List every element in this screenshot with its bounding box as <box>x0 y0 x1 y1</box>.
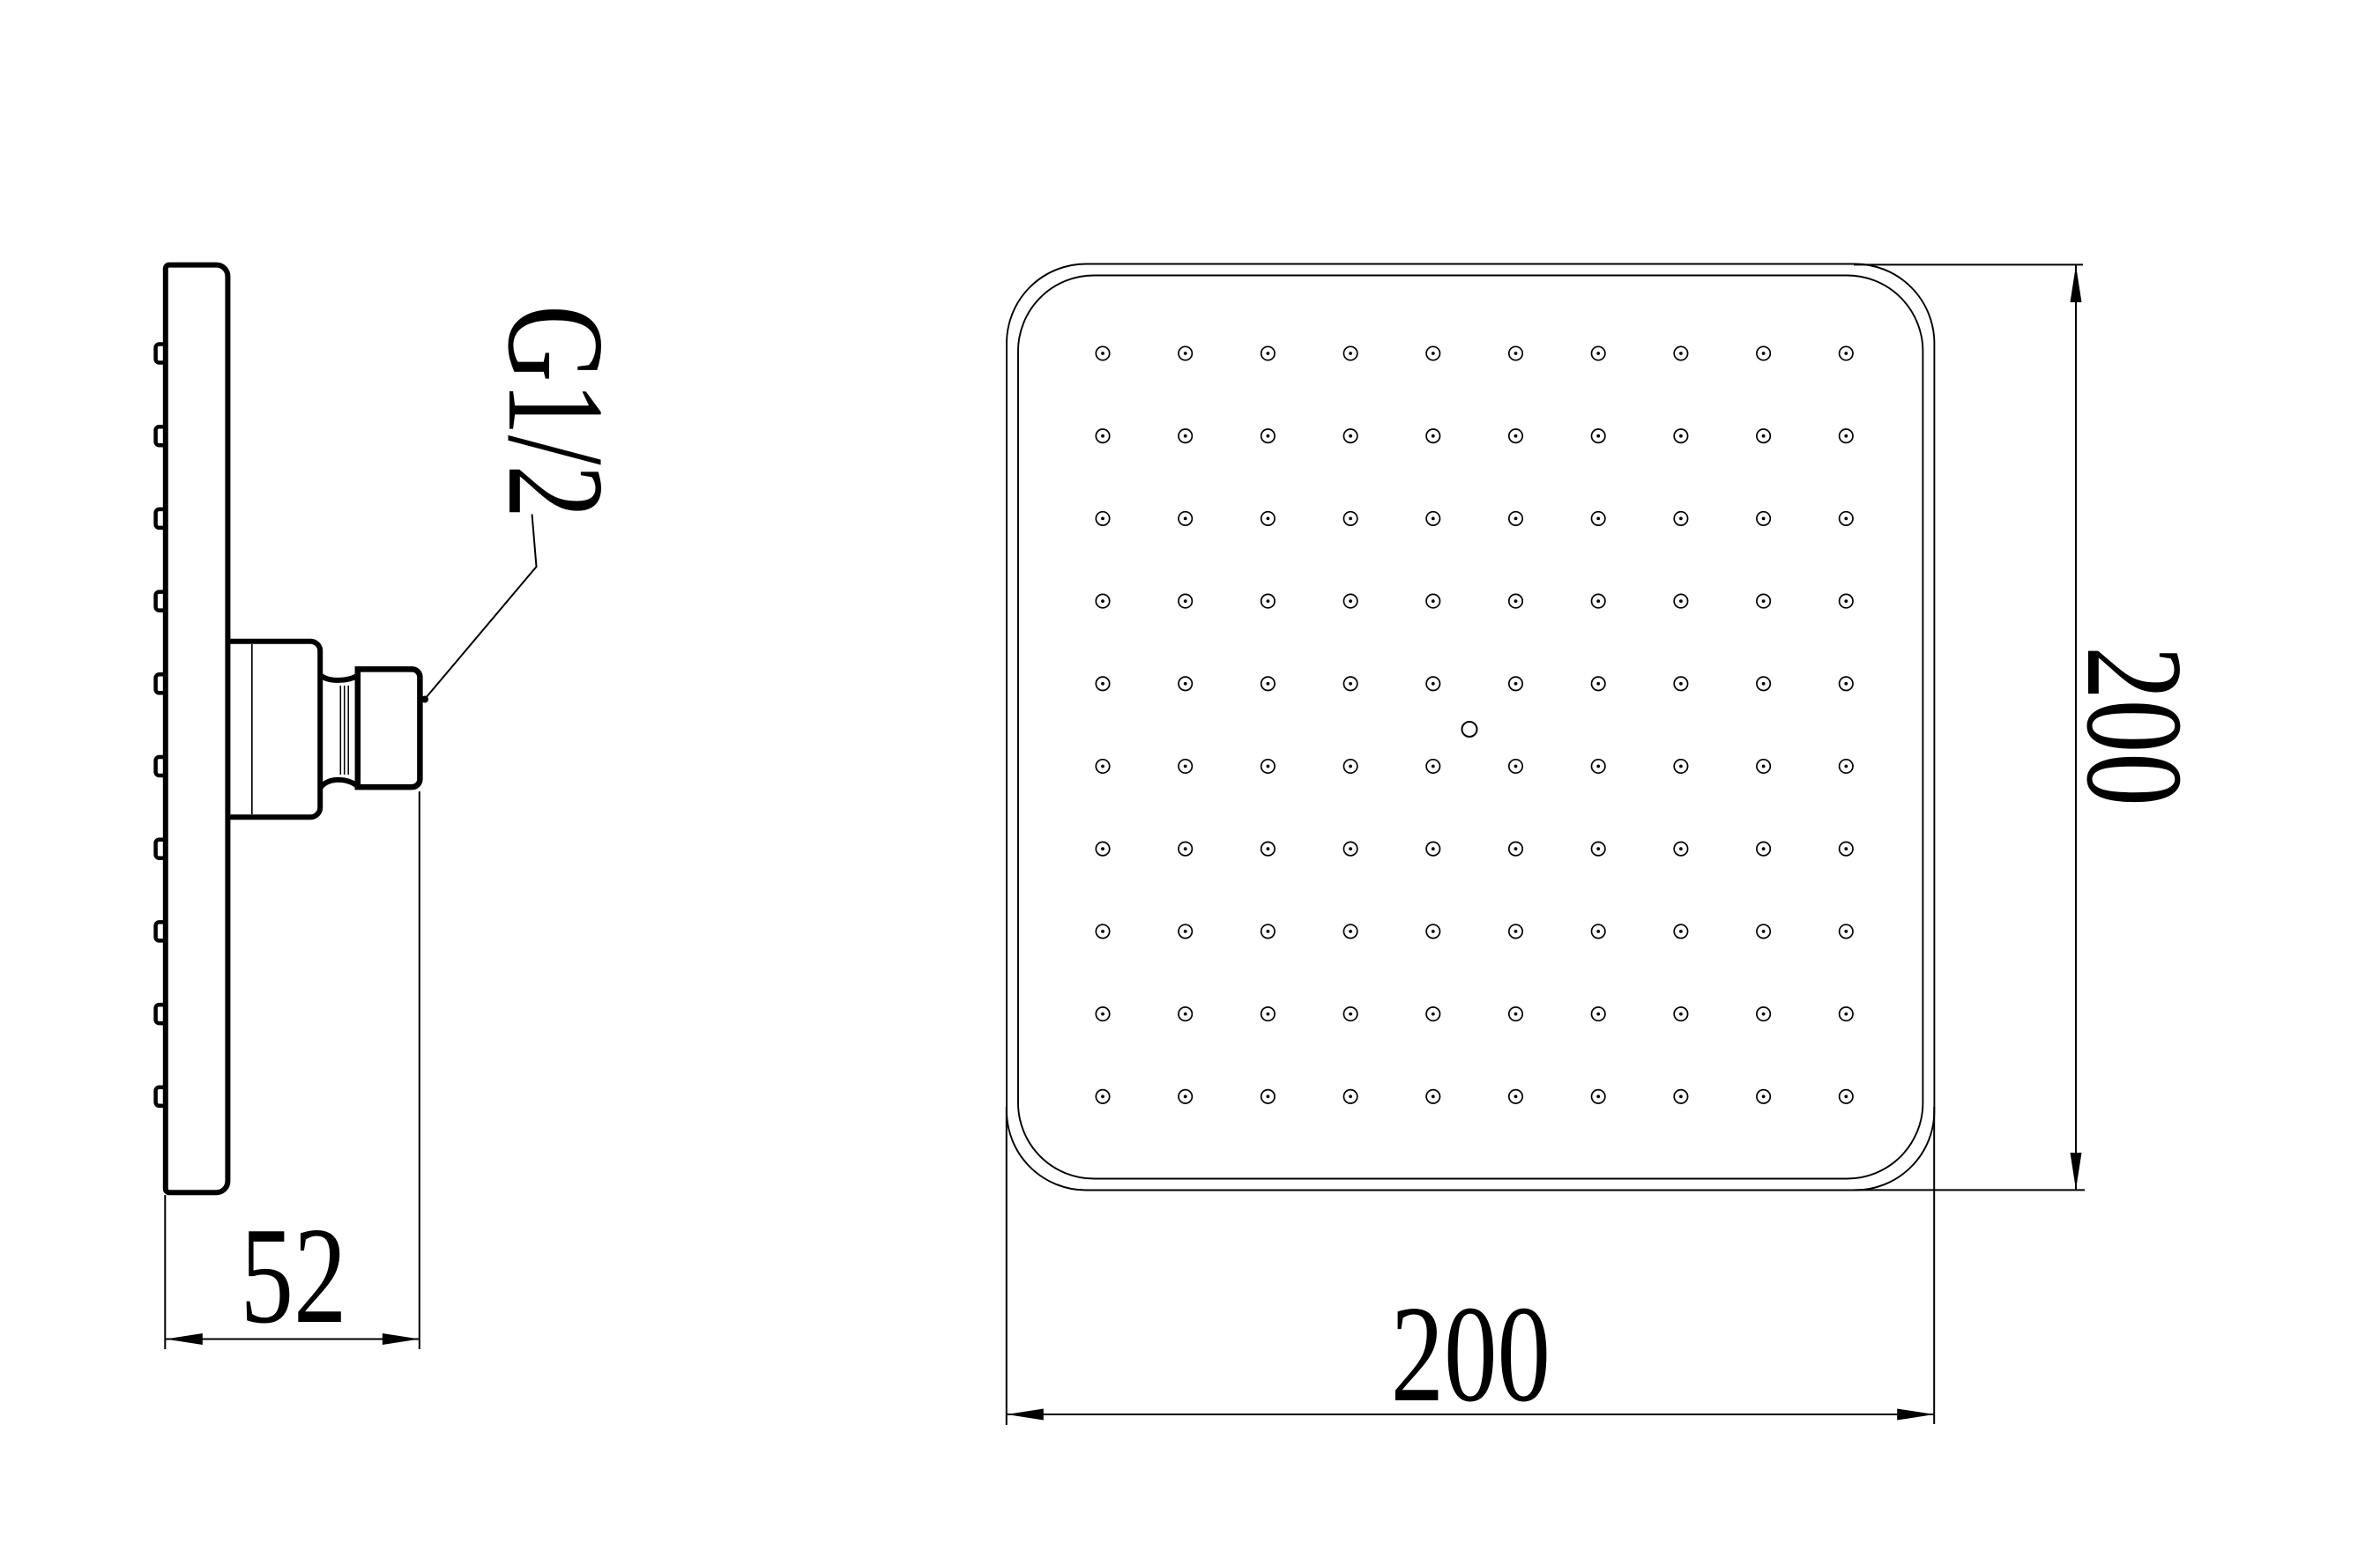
svg-text:200: 200 <box>2057 646 2211 805</box>
svg-text:200: 200 <box>1391 1278 1551 1431</box>
svg-text:G1/2: G1/2 <box>479 305 632 518</box>
svg-text:52: 52 <box>241 1199 347 1353</box>
